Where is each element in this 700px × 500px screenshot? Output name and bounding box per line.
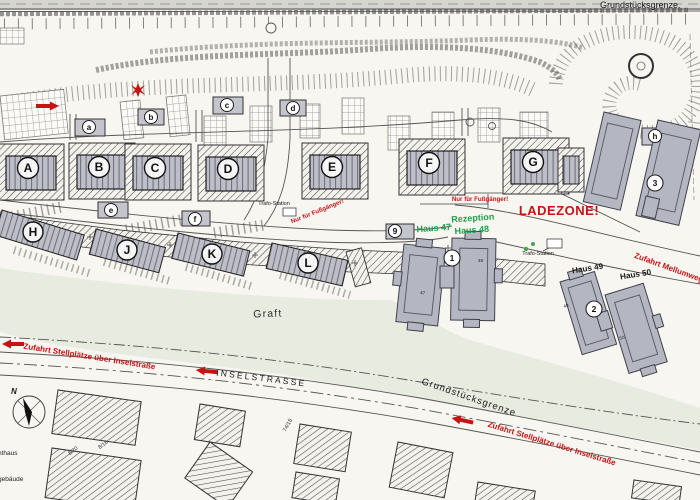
- trafo-label-2: Trafo-Station: [522, 251, 554, 257]
- outbuilding-letter-e: e: [109, 206, 114, 215]
- pedestrian-only-label-horizontal: Nur für Fußgänger!: [452, 196, 508, 203]
- circle-number-1: 1: [450, 253, 455, 263]
- outbuilding-letter-a: a: [87, 123, 92, 132]
- outbuilding-letter-d: d: [291, 104, 296, 113]
- edge-label-gebaeude: gebäude: [0, 476, 24, 483]
- outbuilding-letter-h: h: [653, 132, 658, 141]
- trafo-label-1: Trafo-Station: [258, 201, 290, 207]
- site-plan: N Trafo-Station Trafo-Station A B C D E …: [0, 0, 700, 500]
- block-letter-f: F: [425, 156, 432, 170]
- outbuilding-letter-b: b: [149, 113, 154, 122]
- circle-number-9: 9: [393, 226, 398, 236]
- block-letter-g: G: [528, 155, 537, 169]
- row-letter-h: H: [29, 225, 38, 239]
- site-plan-drawing: N Trafo-Station Trafo-Station A B C D E …: [0, 0, 700, 500]
- ladezone-label: LADEZONE!: [519, 203, 599, 218]
- block-letter-b: B: [95, 160, 104, 174]
- roundabout-island: [629, 54, 653, 78]
- block-letter-d: D: [224, 162, 233, 176]
- outbuilding-letter-c: c: [225, 101, 230, 110]
- haus-47-48-connector: [440, 266, 454, 288]
- edge-label-haus: nthaus: [0, 450, 18, 457]
- block-letter-c: C: [151, 161, 160, 175]
- graft-label: Graft: [253, 307, 283, 320]
- block-letter-e: E: [328, 160, 336, 174]
- circle-number-3: 3: [653, 178, 658, 188]
- circle-number-2: 2: [592, 304, 597, 314]
- block-letter-a: A: [24, 161, 33, 175]
- unit-47: 47: [420, 290, 426, 296]
- outbuilding-letter-f: f: [194, 215, 197, 224]
- unit-48: 48: [478, 258, 484, 263]
- row-letter-k: K: [208, 247, 217, 261]
- boundary-label-top: Grundstücksgrenze.: [600, 0, 681, 10]
- compass-north-label: N: [11, 387, 17, 396]
- row-letter-l: L: [304, 256, 311, 270]
- row-letter-j: J: [124, 243, 131, 257]
